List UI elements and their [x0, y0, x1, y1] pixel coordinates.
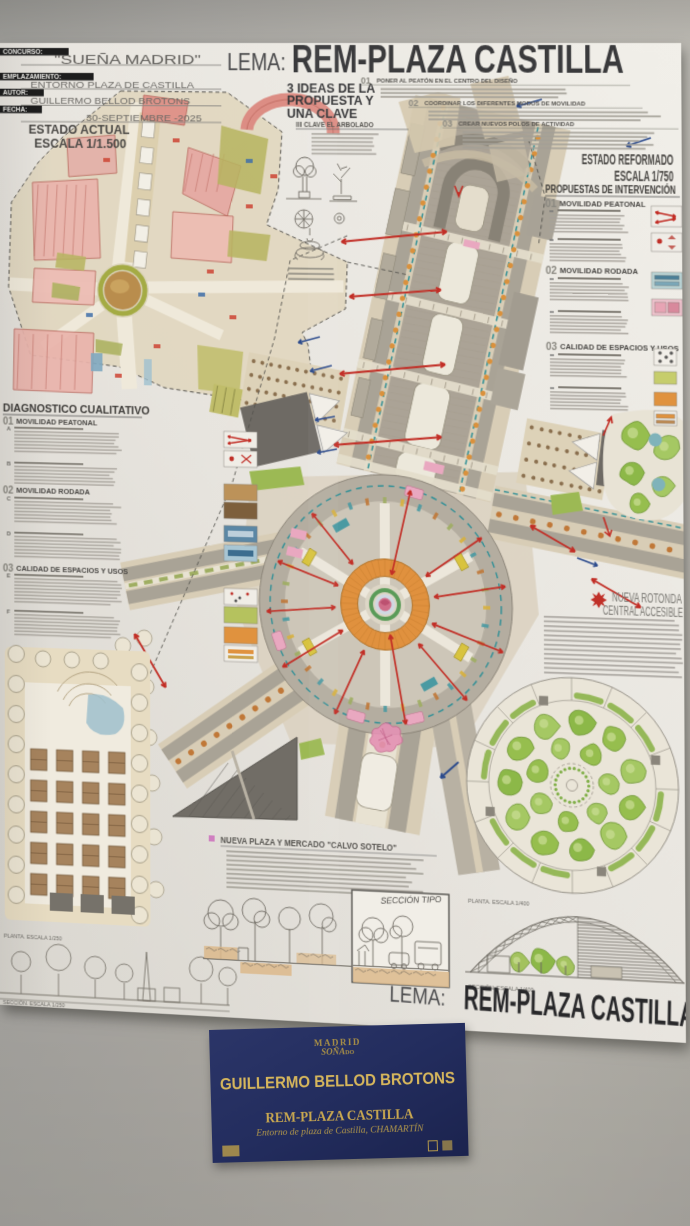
svg-text:ENTORNO PLAZA DE CASTILLA: ENTORNO PLAZA DE CASTILLA — [30, 81, 194, 91]
svg-text:PROPUESTAS DE INTERVENCIÓN: PROPUESTAS DE INTERVENCIÓN — [545, 182, 675, 197]
svg-text:LEMA:: LEMA: — [227, 49, 286, 75]
svg-text:ESTADO REFORMADO: ESTADO REFORMADO — [582, 152, 674, 169]
svg-text:"SUEÑA MADRID": "SUEÑA MADRID" — [54, 53, 201, 68]
svg-text:CENTRAL ACCESIBLE: CENTRAL ACCESIBLE — [603, 603, 683, 621]
svg-text:02: 02 — [408, 98, 418, 109]
svg-text:01: 01 — [361, 75, 371, 85]
svg-text:ESCALA 1/750: ESCALA 1/750 — [614, 168, 673, 184]
svg-text:REM-PLAZA CASTILLA: REM-PLAZA CASTILLA — [292, 43, 624, 81]
svg-text:CREAR NUEVOS POLOS DE ACTIVIDA: CREAR NUEVOS POLOS DE ACTIVIDAD — [458, 121, 574, 128]
svg-text:MOVILIDAD RODADA: MOVILIDAD RODADA — [560, 266, 639, 277]
svg-text:02: 02 — [546, 265, 558, 277]
svg-text:MOVILIDAD PEATONAL: MOVILIDAD PEATONAL — [559, 199, 646, 209]
svg-text:01: 01 — [545, 199, 557, 211]
svg-text:GUILLERMO BELLOD BROTONS: GUILLERMO BELLOD BROTONS — [30, 97, 190, 107]
svg-text:LEMA:: LEMA: — [389, 981, 446, 1011]
svg-text:03: 03 — [442, 118, 452, 129]
svg-text:SECCIÓN TIPO: SECCIÓN TIPO — [380, 894, 442, 906]
svg-text:03: 03 — [546, 341, 558, 353]
svg-text:COORDINAR LOS DIFERENTES MODOS: COORDINAR LOS DIFERENTES MODOS DE MOVILI… — [424, 101, 585, 108]
